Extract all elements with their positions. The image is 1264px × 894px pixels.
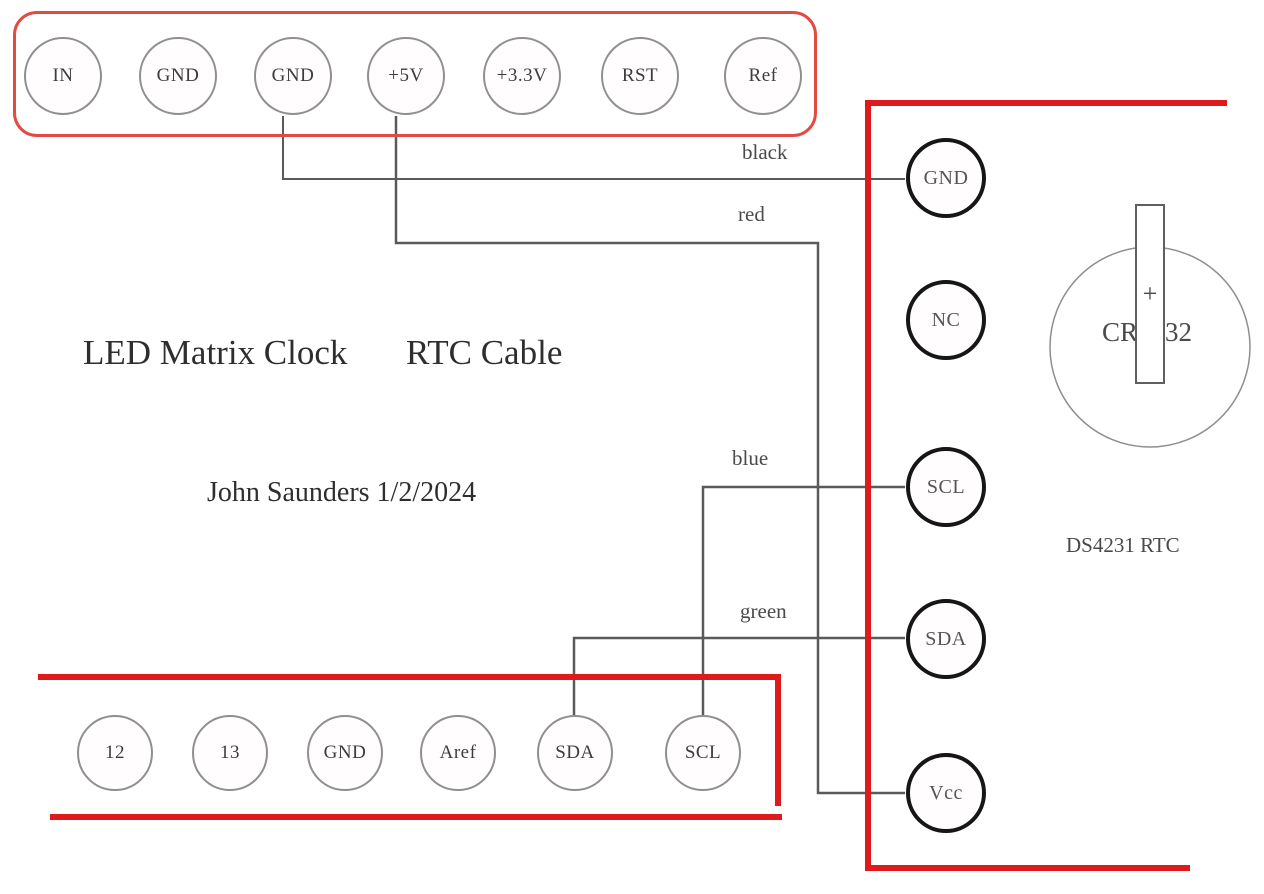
top-pin-5v: +5V xyxy=(367,37,445,115)
rtc-pin-scl: SCL xyxy=(906,447,986,527)
rtc-pin-nc: NC xyxy=(906,280,986,360)
bottom-pin-aref: Aref xyxy=(420,715,496,791)
wire-label-green: green xyxy=(740,599,787,624)
cable-title: RTC Cable xyxy=(406,333,562,373)
pin-label: Ref xyxy=(749,65,778,87)
wire-blue xyxy=(703,487,905,715)
top-pin-rst: RST xyxy=(601,37,679,115)
rtc-module-label: DS4231 RTC xyxy=(1066,533,1180,558)
pin-label: NC xyxy=(932,309,961,332)
wire-label-blue: blue xyxy=(732,446,768,471)
bottom-pin-13: 13 xyxy=(192,715,268,791)
rtc-pin-vcc: Vcc xyxy=(906,753,986,833)
diagram-title: LED Matrix Clock xyxy=(83,333,347,373)
bottom-pin-12: 12 xyxy=(77,715,153,791)
pin-label: Aref xyxy=(440,742,477,764)
pin-label: GND xyxy=(157,65,200,87)
pin-label: RST xyxy=(622,65,658,87)
bottom-pin-scl: SCL xyxy=(665,715,741,791)
pin-label: +3.3V xyxy=(497,65,548,87)
bottom-pin-gnd: GND xyxy=(307,715,383,791)
wire-label-red: red xyxy=(738,202,765,227)
pin-label: SCL xyxy=(927,476,965,499)
pin-label: GND xyxy=(324,742,367,764)
pin-label: GND xyxy=(272,65,315,87)
battery-polarity-mark: + xyxy=(1143,279,1158,308)
top-pin-3v3: +3.3V xyxy=(483,37,561,115)
pin-label: GND xyxy=(924,167,969,190)
pin-label: 13 xyxy=(220,742,240,764)
pin-label: IN xyxy=(52,65,73,87)
pin-label: SCL xyxy=(685,742,721,764)
pin-label: SDA xyxy=(925,628,967,651)
wiring-diagram: CR2032 + IN GND GND +5V +3.3V RST Ref 12… xyxy=(0,0,1264,894)
rtc-pin-gnd: GND xyxy=(906,138,986,218)
top-pin-gnd-2: GND xyxy=(254,37,332,115)
author-date: John Saunders 1/2/2024 xyxy=(207,477,476,509)
top-pin-gnd-1: GND xyxy=(139,37,217,115)
rtc-pin-sda: SDA xyxy=(906,599,986,679)
pin-label: +5V xyxy=(388,65,423,87)
top-pin-in: IN xyxy=(24,37,102,115)
pin-label: SDA xyxy=(555,742,595,764)
bottom-pin-sda: SDA xyxy=(537,715,613,791)
top-pin-ref: Ref xyxy=(724,37,802,115)
pin-label: 12 xyxy=(105,742,125,764)
pin-label: Vcc xyxy=(929,782,963,805)
wire-red xyxy=(396,116,905,793)
wire-label-black: black xyxy=(742,140,787,165)
